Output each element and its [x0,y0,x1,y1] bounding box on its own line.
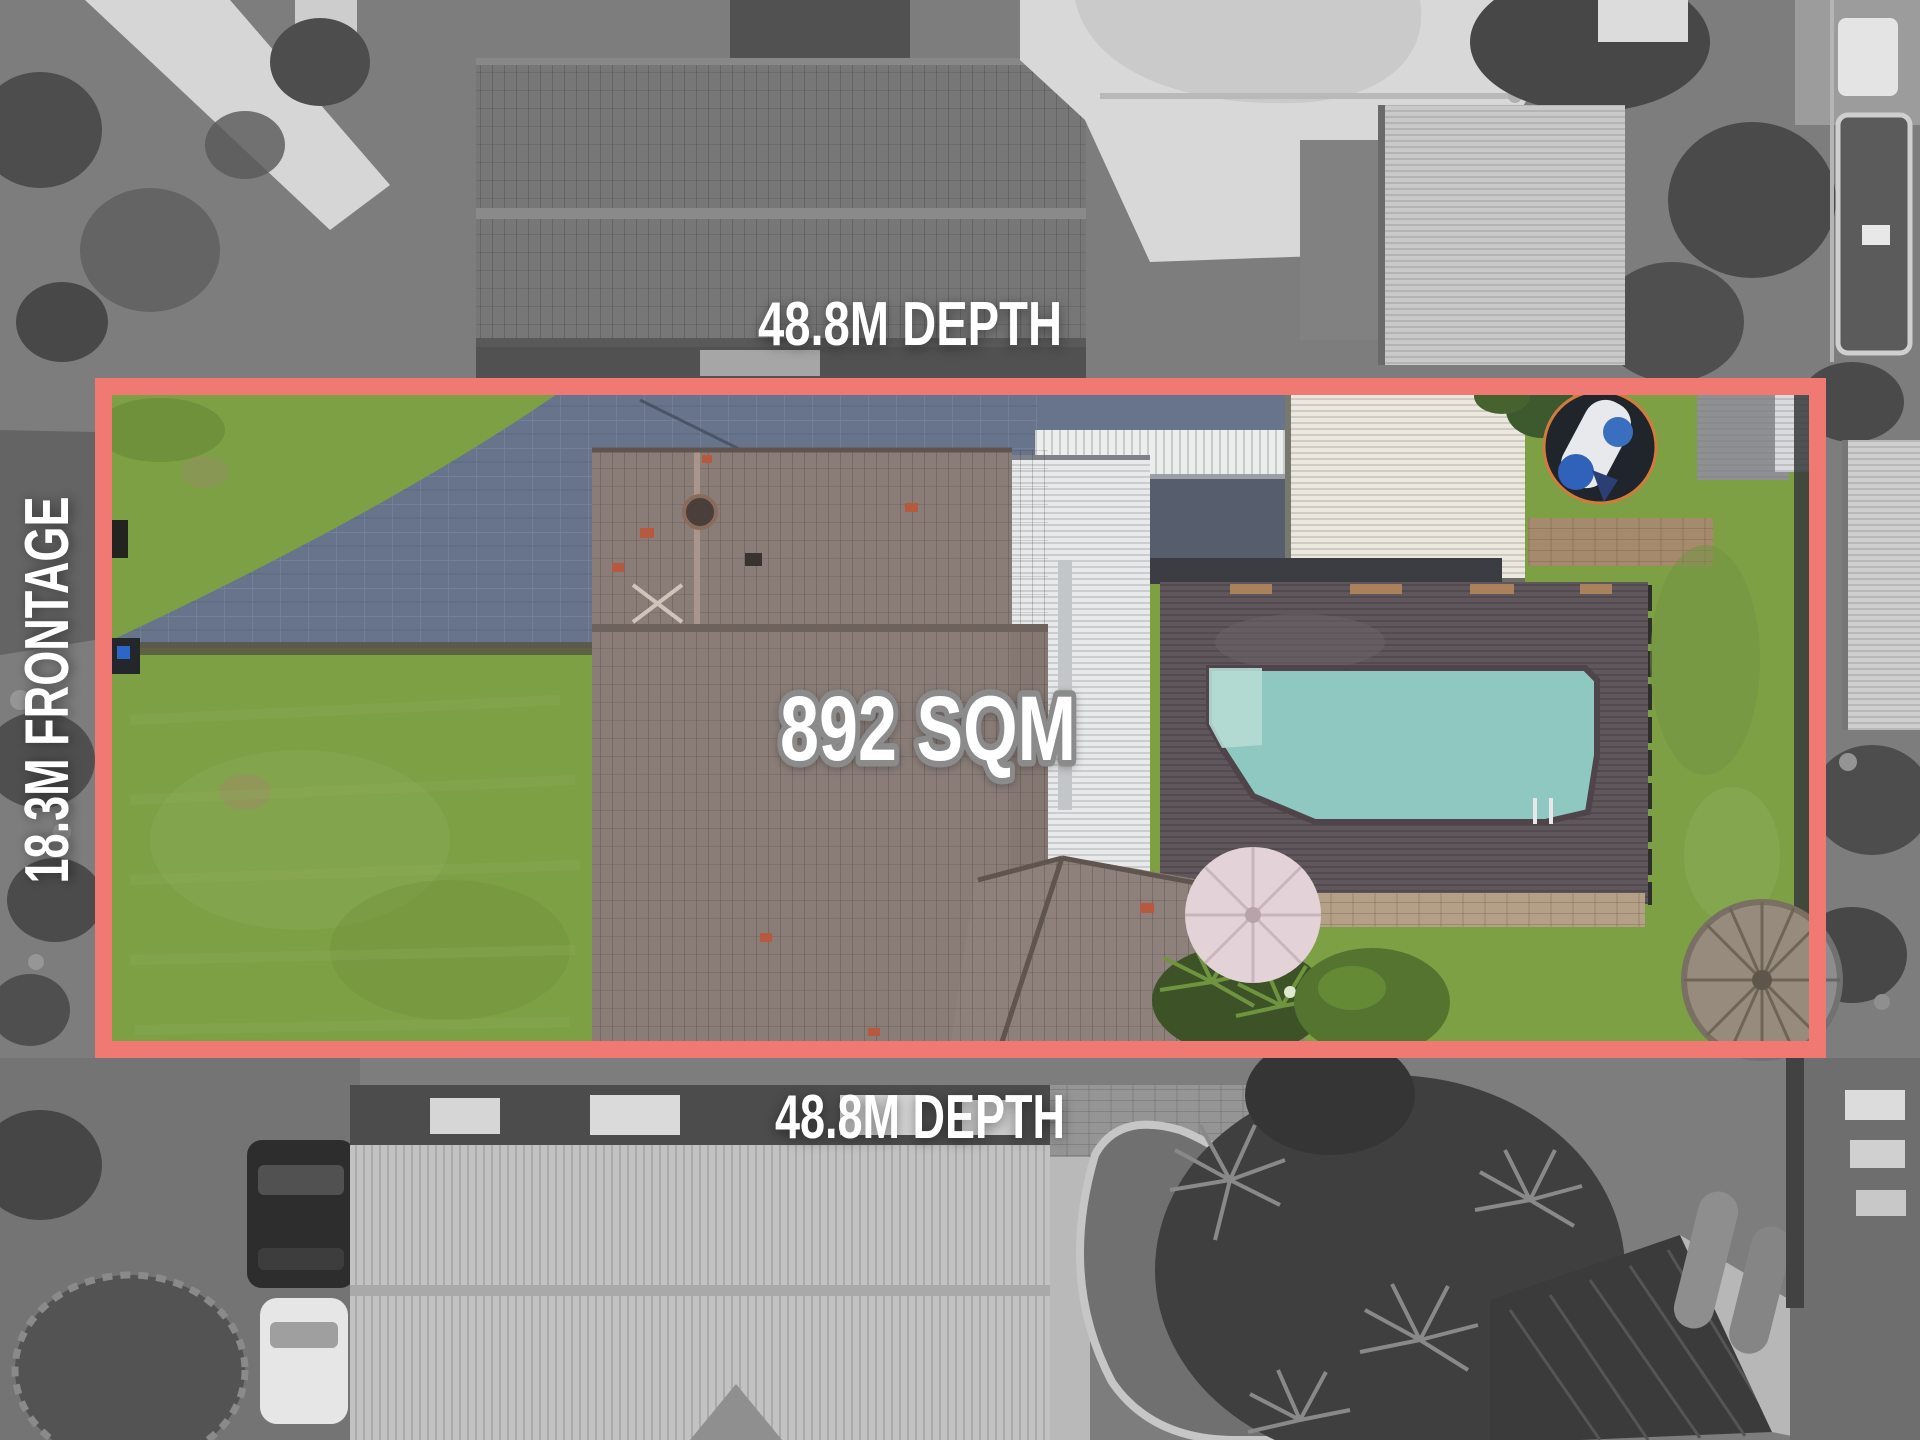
area-label: 892 SQM [780,678,1076,780]
depth-label-bottom: 48.8M DEPTH [775,1083,1065,1152]
frontage-label: 18.3M FRONTAGE [13,497,82,884]
aerial-property-photo: 48.8M DEPTH 18.3M FRONTAGE 892 SQM 48.8M… [0,0,1920,1440]
annotation-overlay: 48.8M DEPTH 18.3M FRONTAGE 892 SQM 48.8M… [0,0,1920,1440]
depth-label-top: 48.8M DEPTH [758,290,1062,359]
